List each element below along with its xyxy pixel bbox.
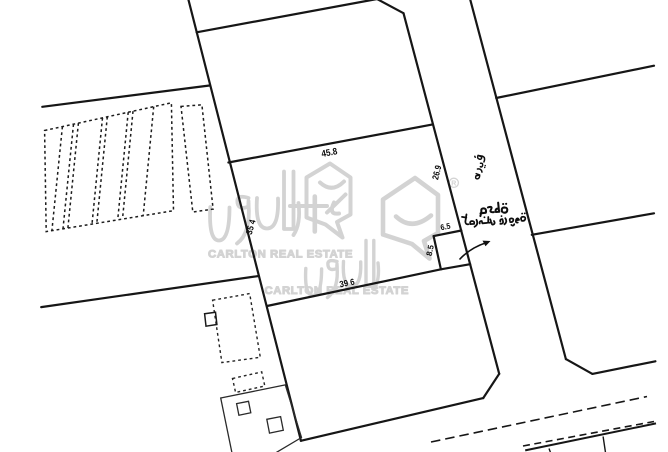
svg-text:CARLTON REAL ESTATE: CARLTON REAL ESTATE [208, 249, 353, 261]
svg-text:R: R [451, 181, 456, 188]
